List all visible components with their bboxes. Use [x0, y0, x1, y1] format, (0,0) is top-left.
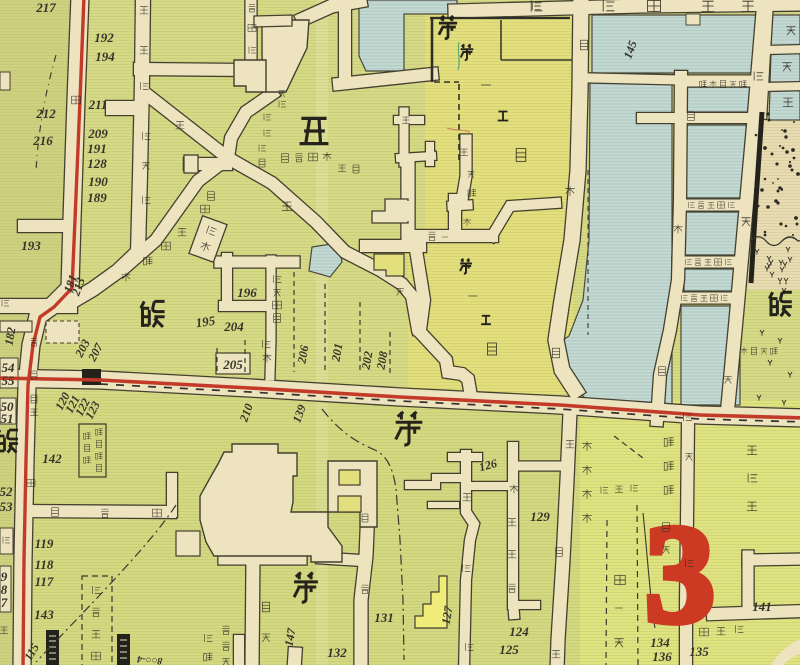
svg-text:128: 128 [87, 156, 107, 171]
svg-text:7: 7 [1, 595, 8, 610]
svg-text:217: 217 [35, 0, 56, 15]
svg-text:194: 194 [95, 49, 115, 64]
svg-text:3: 3 [645, 497, 715, 652]
svg-text:135: 135 [689, 644, 709, 659]
svg-text:142: 142 [42, 451, 62, 466]
svg-text:118: 118 [35, 557, 54, 572]
svg-text:125: 125 [499, 642, 519, 657]
svg-text:195: 195 [195, 313, 217, 331]
svg-text:131: 131 [374, 610, 394, 625]
svg-text:189: 189 [87, 190, 107, 205]
svg-text:192: 192 [94, 30, 114, 45]
svg-text:136: 136 [652, 649, 672, 664]
svg-text:143: 143 [34, 607, 54, 622]
svg-text:196: 196 [237, 285, 257, 300]
svg-text:53: 53 [0, 499, 13, 514]
svg-text:129: 129 [530, 509, 550, 524]
svg-text:205: 205 [222, 357, 243, 372]
svg-text:124: 124 [509, 624, 529, 639]
svg-text:117: 117 [35, 574, 54, 589]
svg-text:134: 134 [650, 635, 670, 650]
svg-text:193: 193 [21, 238, 41, 253]
svg-text:132: 132 [327, 645, 347, 660]
svg-text:141: 141 [752, 599, 772, 614]
svg-text:209: 209 [87, 126, 108, 141]
svg-text:211: 211 [88, 97, 108, 112]
svg-text:52: 52 [0, 484, 13, 499]
svg-text:191: 191 [87, 141, 107, 156]
svg-text:204: 204 [223, 319, 244, 334]
svg-text:51: 51 [1, 411, 14, 426]
svg-text:55: 55 [2, 373, 16, 388]
svg-text:119: 119 [35, 536, 54, 551]
svg-text:190: 190 [88, 174, 108, 189]
svg-text:216: 216 [32, 133, 53, 148]
svg-text:212: 212 [35, 106, 56, 121]
